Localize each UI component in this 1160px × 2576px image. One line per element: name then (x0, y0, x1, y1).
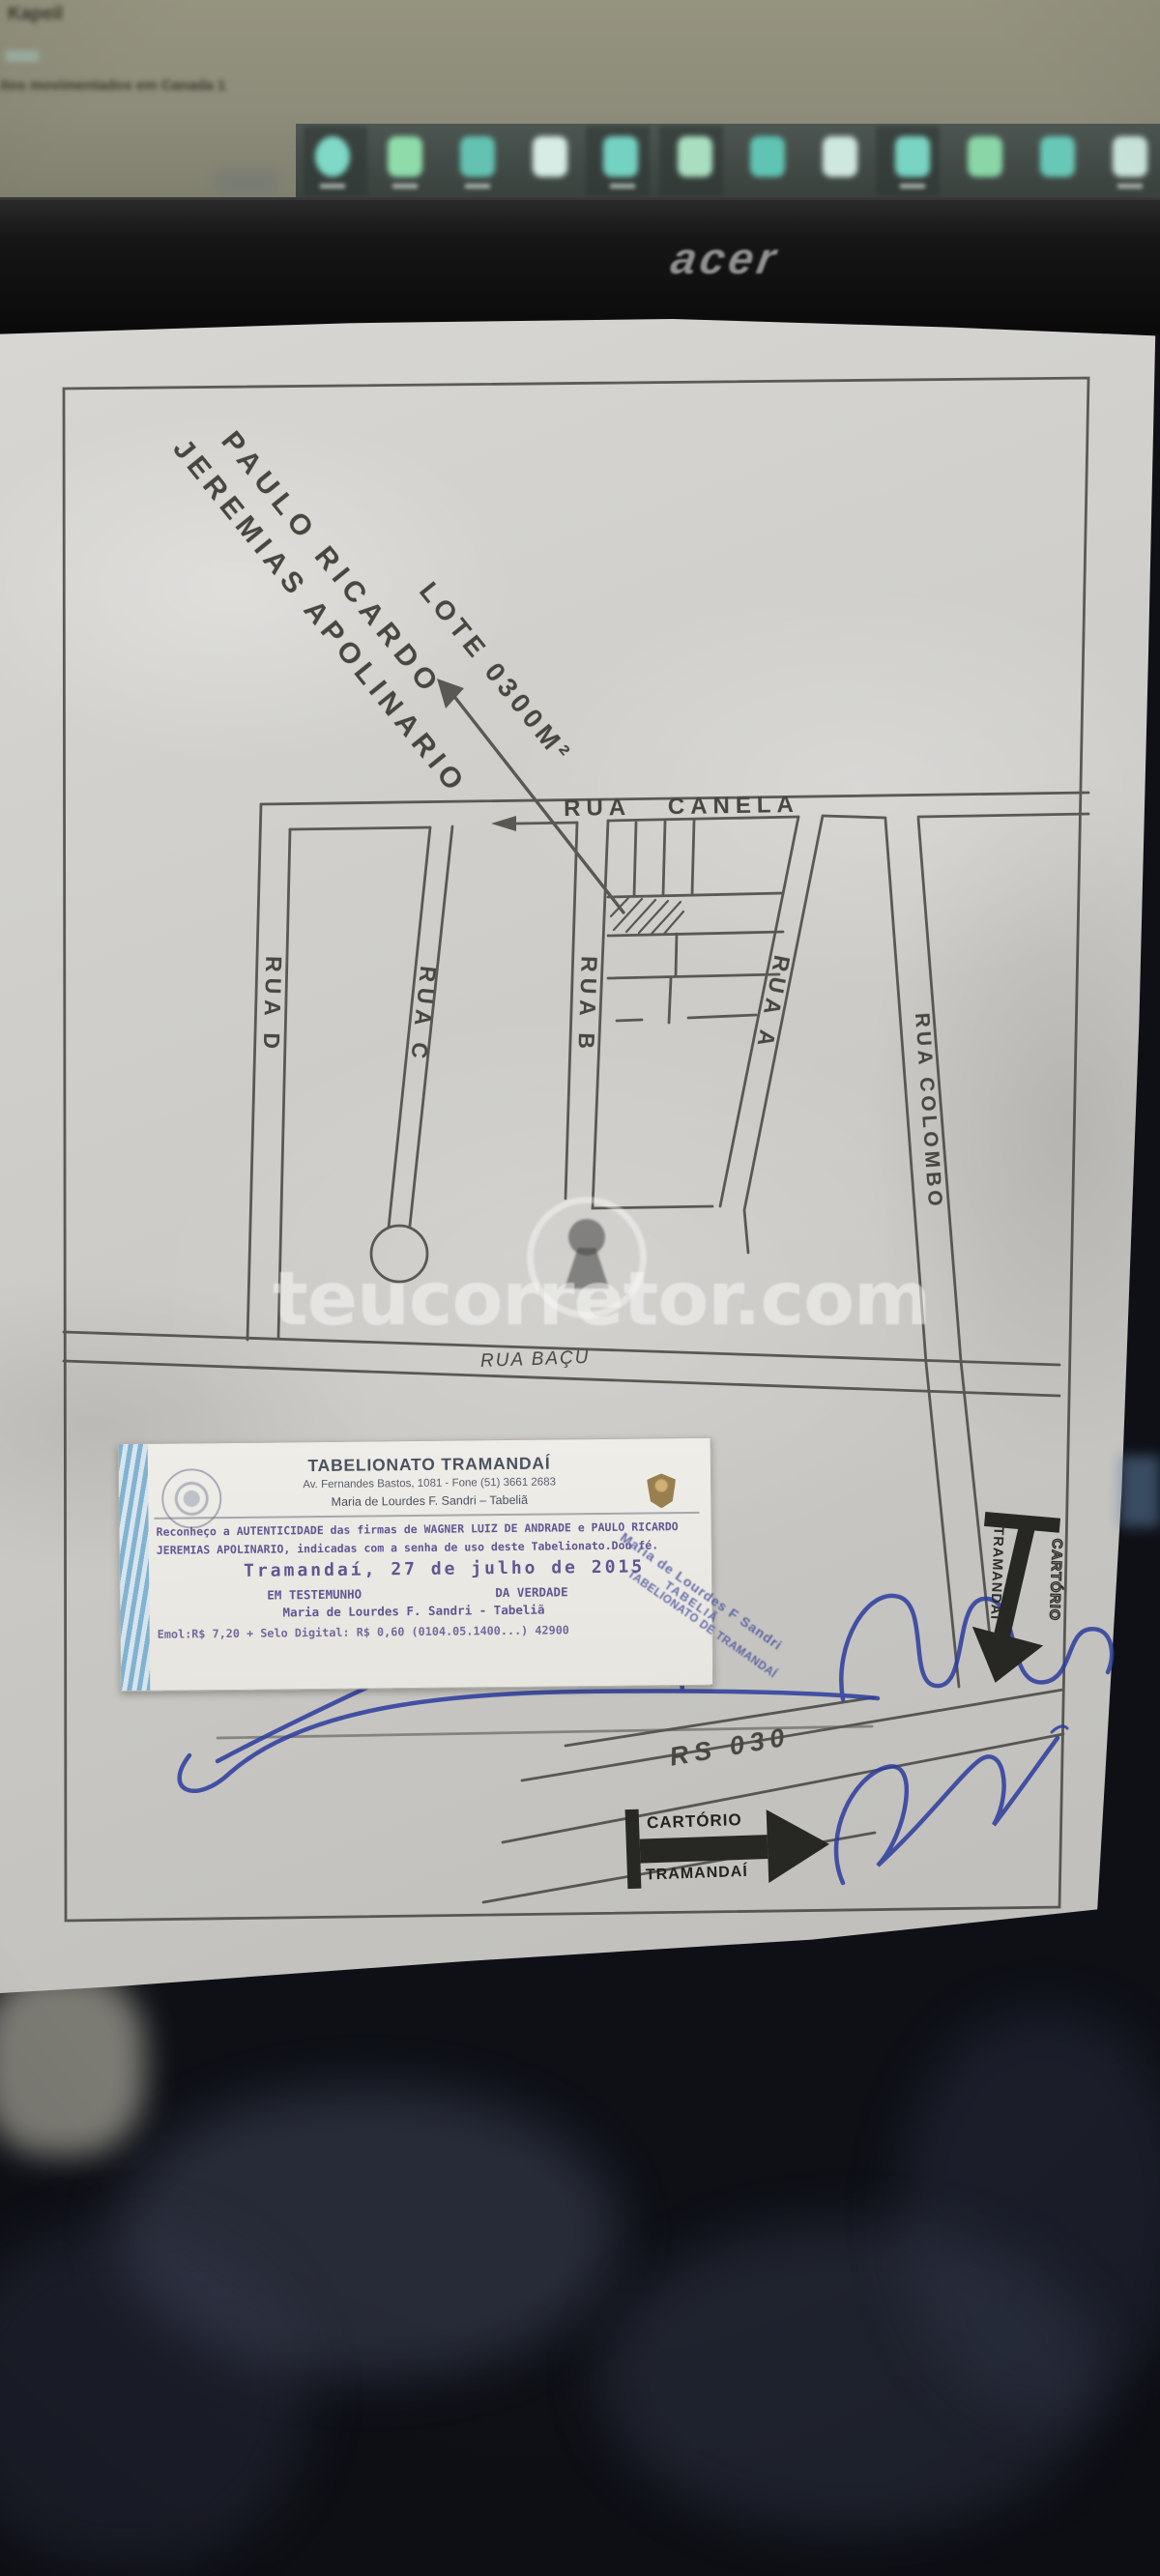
divider (154, 1512, 699, 1520)
officer-signature-line: Maria de Lourdes F. Sandri - Tabeliã (282, 1603, 544, 1620)
fee-line: Emol:R$ 7,20 + Selo Digital: R$ 0,60 (01… (158, 1623, 569, 1640)
notary-officer: Maria de Lourdes F. Sandri – Tabeliã (148, 1491, 710, 1511)
hatched-lot (611, 898, 683, 934)
street-label-rua-canela: RUA CANELA (541, 791, 822, 825)
cartorio-arrow-stamp-right: CARTÓRIO TRAMANDAÍ (619, 1794, 863, 1901)
owner-signature (836, 1738, 1058, 1883)
street-label-rua-b: RUA B (568, 933, 602, 1079)
arrow-stamp-text-cartorio: CARTÓRIO (1046, 1521, 1065, 1637)
security-stripe (119, 1444, 151, 1691)
arrow-feather (625, 1809, 642, 1889)
arrow-stamp-text-tramandai: TRAMANDAÍ (646, 1864, 748, 1885)
street-label-rua-bacu: RUA BAÇU (480, 1347, 591, 1373)
photo-scene: Kapeil itos movimentados em Canada 1 (0, 0, 1160, 2576)
auth-body-line2: JEREMIAS APOLINARIO, indicadas com a sen… (157, 1538, 658, 1556)
street-label-rua-d: RUA D (254, 933, 287, 1079)
witness-right: DA VERDADE (495, 1584, 567, 1600)
arrow-head-icon (767, 1808, 831, 1883)
auth-body-line1: Reconheço a AUTENTICIDADE das firmas de … (157, 1520, 679, 1539)
arrow-stamp-text-cartorio: CARTÓRIO (647, 1810, 742, 1833)
auth-date-line: Tramandaí, 27 de julho de 2015 (244, 1557, 645, 1581)
arrow-shaft (640, 1835, 768, 1864)
notary-title: TABELIONATO TRAMANDAÍ (148, 1452, 710, 1478)
notary-address: Av. Fernandes Bastos, 1081 - Fone (51) 3… (148, 1475, 710, 1492)
witness-left: EM TESTEMUNHO (267, 1587, 362, 1603)
watermark-text: teucorretor.com (273, 1257, 930, 1343)
